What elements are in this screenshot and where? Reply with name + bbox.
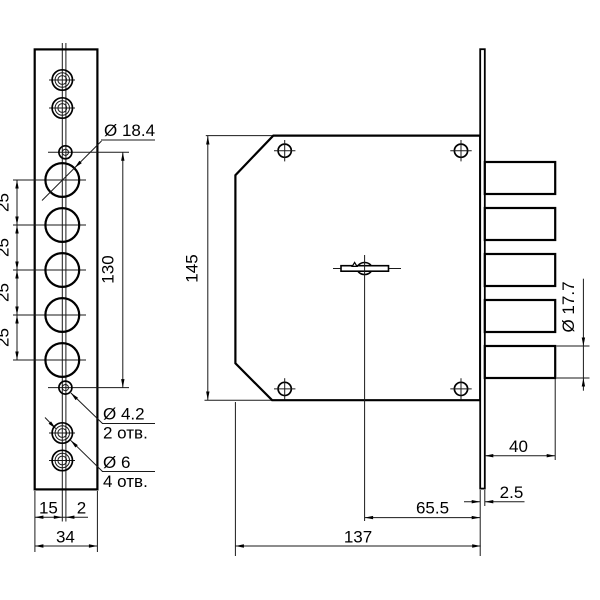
svg-text:145: 145 [183, 254, 202, 282]
svg-text:25: 25 [0, 238, 13, 257]
svg-text:130: 130 [99, 255, 118, 283]
svg-text:Ø 4.2: Ø 4.2 [103, 405, 145, 424]
svg-text:25: 25 [0, 328, 13, 347]
svg-text:40: 40 [509, 437, 528, 456]
svg-text:2 отв.: 2 отв. [103, 424, 148, 443]
svg-text:25: 25 [0, 283, 13, 302]
svg-text:2.5: 2.5 [500, 483, 524, 502]
svg-text:15: 15 [39, 499, 58, 518]
svg-text:34: 34 [56, 528, 75, 547]
svg-text:137: 137 [344, 528, 372, 547]
svg-text:25: 25 [0, 193, 13, 212]
svg-text:4 отв.: 4 отв. [103, 472, 148, 491]
svg-text:65.5: 65.5 [416, 499, 449, 518]
svg-text:Ø 17.7: Ø 17.7 [559, 281, 578, 332]
svg-text:2: 2 [77, 499, 86, 518]
svg-text:Ø 18.4: Ø 18.4 [104, 121, 155, 140]
svg-text:Ø 6: Ø 6 [103, 453, 130, 472]
